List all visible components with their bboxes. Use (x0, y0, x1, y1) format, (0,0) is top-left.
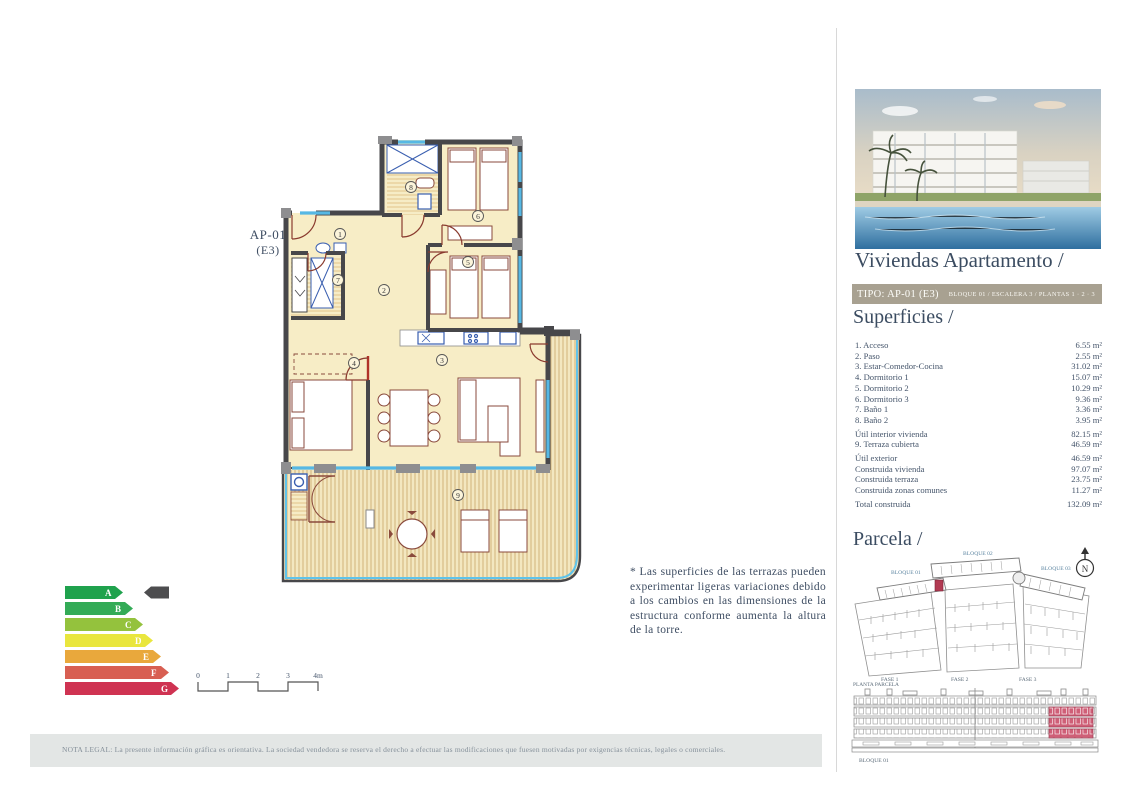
panel-divider (836, 28, 837, 772)
superficies-label: 6. Dormitorio 3 (855, 394, 909, 405)
superficies-row: Construida terraza23.75 m² (855, 474, 1102, 485)
superficies-table: 1. Acceso6.55 m²2. Paso2.55 m²3. Estar-C… (855, 340, 1102, 510)
energy-indicator-arrow (144, 587, 169, 599)
energy-bar-f: F (65, 666, 169, 679)
svg-text:F: F (151, 668, 157, 678)
superficies-row: 7. Baño 13.36 m² (855, 404, 1102, 415)
svg-text:6: 6 (476, 212, 480, 221)
svg-text:BLOQUE 02: BLOQUE 02 (963, 551, 993, 557)
svg-text:8: 8 (409, 183, 413, 192)
superficies-label: Total construida (855, 499, 910, 510)
superficies-label: Útil exterior (855, 453, 897, 464)
superficies-value: 23.75 m² (1071, 474, 1102, 485)
energy-bar-e: E (65, 650, 161, 663)
superficies-value: 82.15 m² (1071, 429, 1102, 440)
scale-line (198, 682, 318, 691)
superficies-label: Útil interior vivienda (855, 429, 928, 440)
superficies-value: 10.29 m² (1071, 383, 1102, 394)
superficies-value: 15.07 m² (1071, 372, 1102, 383)
superficies-label: 5. Dormitorio 2 (855, 383, 909, 394)
superficies-label: 4. Dormitorio 1 (855, 372, 909, 383)
svg-text:G: G (161, 684, 168, 694)
scale-bar: 0 1 2 3 4m (196, 670, 328, 698)
svg-text:1: 1 (226, 671, 230, 680)
page-title: Viviendas Apartamento / (855, 248, 1105, 273)
superficies-label: 9. Terraza cubierta (855, 439, 919, 450)
superficies-value: 11.27 m² (1072, 485, 1102, 496)
building-elevation: BLOQUE 01 (851, 686, 1103, 766)
svg-text:D: D (135, 636, 142, 646)
svg-text:FASE 3: FASE 3 (1019, 677, 1037, 683)
dining-set (378, 390, 440, 446)
scale-ticks: 0 1 2 3 4m (196, 671, 323, 680)
svg-text:3: 3 (286, 671, 290, 680)
superficies-label: Construida terraza (855, 474, 918, 485)
superficies-value: 6.55 m² (1076, 340, 1102, 351)
dormitorio1-bed (290, 380, 352, 450)
superficies-row: 4. Dormitorio 115.07 m² (855, 372, 1102, 383)
energy-bar-c: C (65, 618, 143, 631)
svg-text:BLOQUE 03: BLOQUE 03 (1041, 566, 1071, 572)
base-line (852, 748, 1098, 752)
superficies-row: Construida zonas comunes11.27 m² (855, 485, 1102, 496)
svg-text:2: 2 (256, 671, 260, 680)
superficies-value: 9.36 m² (1076, 394, 1102, 405)
unit-code: AP-01 (226, 227, 310, 243)
superficies-title: Superficies / (853, 306, 954, 329)
superficies-row: 6. Dormitorio 39.36 m² (855, 394, 1102, 405)
svg-text:N: N (1082, 564, 1089, 574)
legal-text: NOTA LEGAL: La presente información gráf… (62, 745, 725, 754)
svg-text:4m: 4m (313, 671, 323, 680)
superficies-row: 9. Terraza cubierta46.59 m² (855, 439, 1102, 450)
fase-labels: FASE 1 FASE 2 FASE 3 (881, 677, 1037, 683)
superficies-value: 132.09 m² (1067, 499, 1102, 510)
svg-text:B: B (115, 604, 121, 614)
superficies-value: 3.36 m² (1076, 404, 1102, 415)
superficies-row: Útil interior vivienda82.15 m² (855, 429, 1102, 440)
brochure-page: 1 2 3 4 5 6 7 8 9 AP-01 (E3) * Las super… (0, 0, 1133, 800)
svg-text:3: 3 (440, 356, 444, 365)
kitchen-appliances (418, 332, 516, 344)
elevation-highlight (1049, 707, 1093, 738)
hero-photo (855, 89, 1101, 249)
superficies-row: 3. Estar-Comedor-Cocina31.02 m² (855, 361, 1102, 372)
unit-highlight (935, 580, 943, 591)
energy-bar-a: A (65, 586, 123, 599)
superficies-row: Total construida132.09 m² (855, 499, 1102, 510)
superficies-row: Construida vivienda97.07 m² (855, 464, 1102, 475)
superficies-row: 8. Baño 23.95 m² (855, 415, 1102, 426)
superficies-label: 1. Acceso (855, 340, 888, 351)
superficies-value: 46.59 m² (1071, 439, 1102, 450)
superficies-label: Construida vivienda (855, 464, 924, 475)
roof-elements (865, 689, 1088, 695)
unit-sub: (E3) (226, 243, 310, 258)
bath2-sink (418, 194, 431, 209)
superficies-value: 3.95 m² (1076, 415, 1102, 426)
svg-text:E: E (143, 652, 149, 662)
superficies-row: 2. Paso2.55 m² (855, 351, 1102, 362)
superficies-value: 46.59 m² (1071, 453, 1102, 464)
superficies-value: 2.55 m² (1076, 351, 1102, 362)
svg-text:5: 5 (466, 258, 470, 267)
laundry-closet (292, 258, 307, 312)
energy-bar-b: B (65, 602, 133, 615)
svg-text:BLOQUE 01: BLOQUE 01 (891, 570, 921, 576)
superficies-label: Construida zonas comunes (855, 485, 947, 496)
superficies-label: 3. Estar-Comedor-Cocina (855, 361, 943, 372)
terrace-note: * Las superficies de las terrazas pueden… (630, 565, 826, 638)
svg-text:2: 2 (382, 286, 386, 295)
superficies-value: 97.07 m² (1071, 464, 1102, 475)
elevation-label: BLOQUE 01 (859, 758, 889, 764)
superficies-label: 8. Baño 2 (855, 415, 888, 426)
superficies-row: 1. Acceso6.55 m² (855, 340, 1102, 351)
superficies-row: 5. Dormitorio 210.29 m² (855, 383, 1102, 394)
superficies-label: 7. Baño 1 (855, 404, 888, 415)
energy-bar-g: G (65, 682, 179, 695)
type-location: BLOQUE 01 / ESCALERA 3 / PLANTAS 1 · 2 ·… (949, 291, 1095, 298)
svg-text:C: C (125, 620, 132, 630)
svg-text:1: 1 (338, 230, 342, 239)
tv-unit (536, 380, 544, 452)
svg-text:0: 0 (196, 671, 200, 680)
terrace-planter (366, 510, 374, 528)
legal-band: NOTA LEGAL: La presente información gráf… (30, 734, 822, 767)
type-label: TIPO: AP-01 (E3) (857, 289, 939, 300)
type-band: TIPO: AP-01 (E3) BLOQUE 01 / ESCALERA 3 … (852, 284, 1102, 304)
superficies-row: Útil exterior46.59 m² (855, 453, 1102, 464)
bath2-tub (416, 178, 434, 188)
svg-text:A: A (105, 588, 112, 598)
superficies-value: 31.02 m² (1071, 361, 1102, 372)
energy-bar-d: D (65, 634, 153, 647)
svg-text:9: 9 (456, 491, 460, 500)
svg-text:7: 7 (336, 276, 340, 285)
unit-label: AP-01 (E3) (226, 227, 310, 258)
superficies-label: 2. Paso (855, 351, 880, 362)
svg-text:4: 4 (352, 359, 356, 368)
site-plan: N BLOQUE 01 (851, 546, 1107, 686)
floor-plan: 1 2 3 4 5 6 7 8 9 (278, 118, 603, 588)
svg-text:FASE 2: FASE 2 (951, 677, 969, 683)
north-compass: N (1077, 547, 1094, 577)
